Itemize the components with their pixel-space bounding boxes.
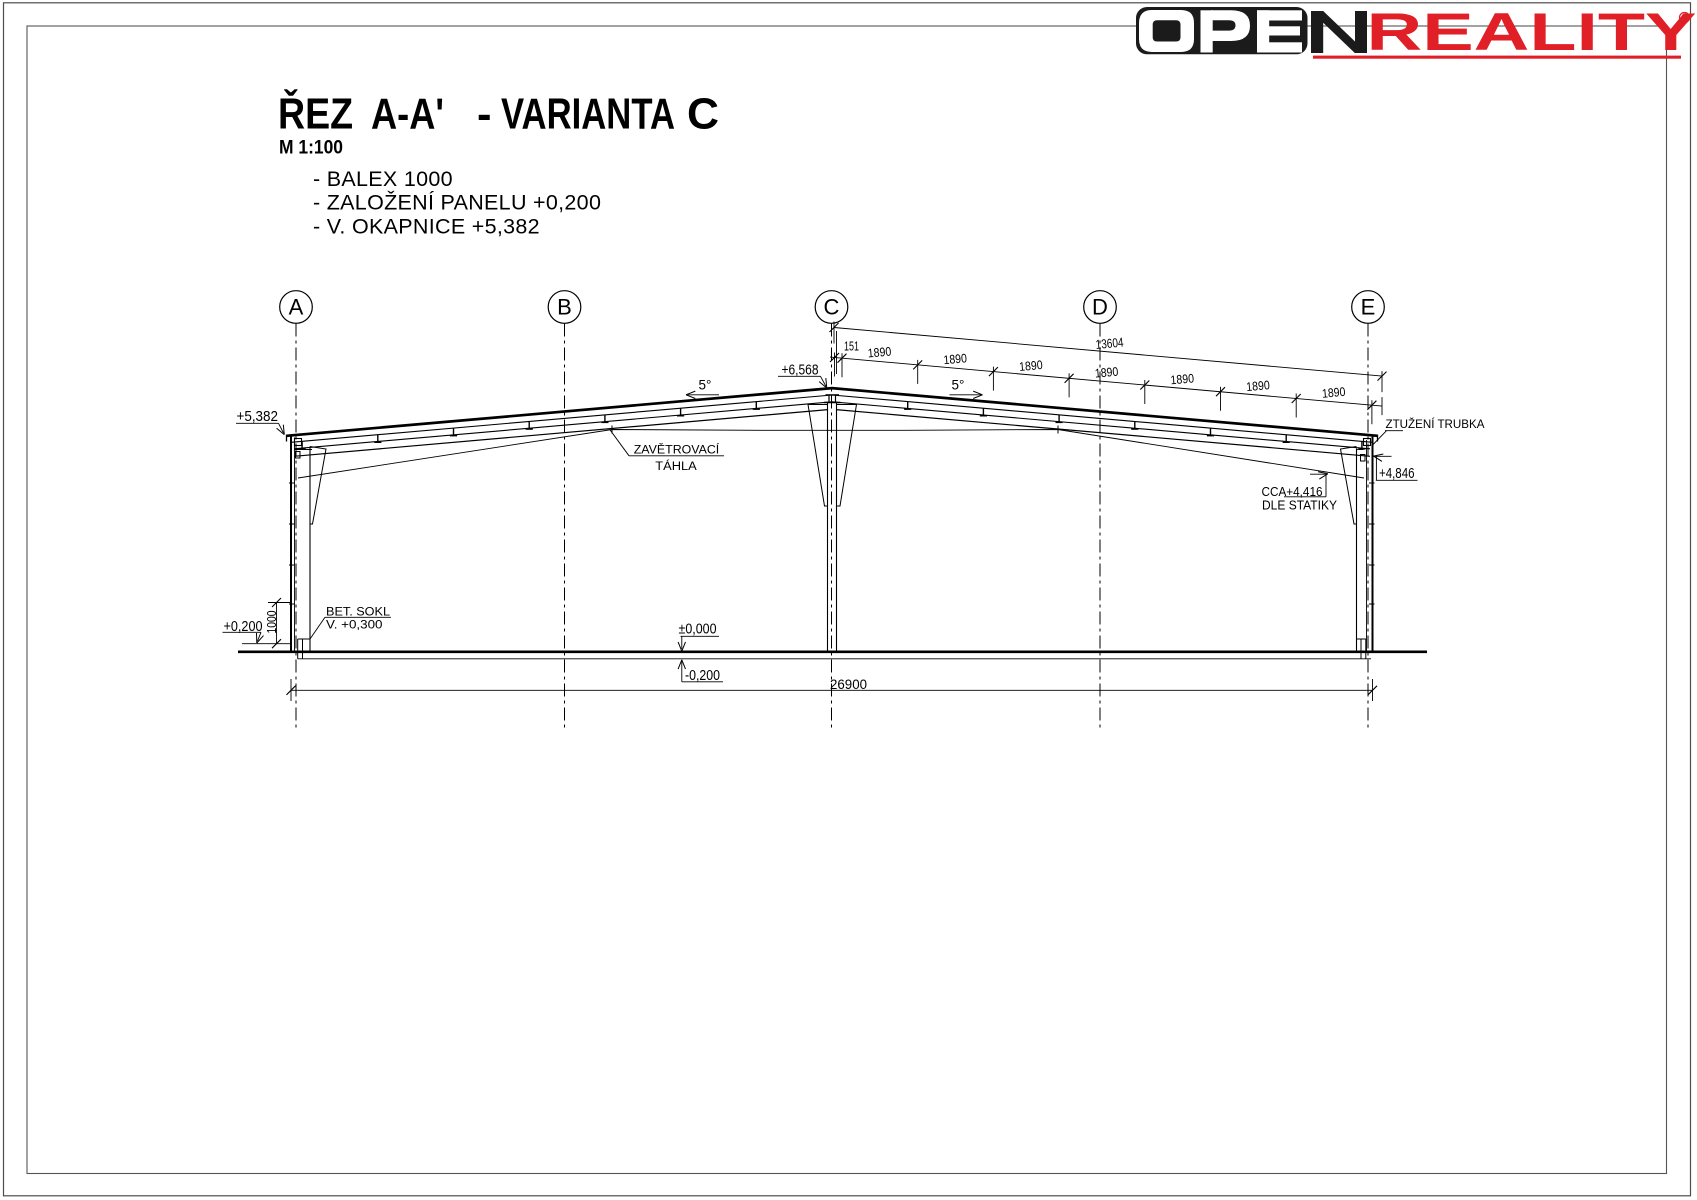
svg-text:5°: 5° [699, 378, 712, 393]
svg-text:1890: 1890 [1321, 385, 1346, 401]
svg-text:TÁHLA: TÁHLA [655, 458, 697, 473]
svg-text:5°: 5° [952, 378, 965, 393]
svg-text:1890: 1890 [1246, 378, 1271, 394]
svg-text:R: R [1682, 14, 1688, 23]
svg-text:151: 151 [844, 340, 859, 354]
svg-text:B: B [557, 295, 572, 320]
svg-text:ZAVĚTROVACÍ: ZAVĚTROVACÍ [634, 442, 720, 457]
svg-text:A: A [289, 295, 304, 320]
svg-text:VARIANTA: VARIANTA [501, 91, 675, 139]
svg-text:C: C [824, 295, 840, 320]
svg-text:1890: 1890 [1094, 365, 1119, 381]
svg-text:BET. SOKL: BET. SOKL [326, 605, 390, 619]
svg-text:D: D [1092, 295, 1108, 320]
svg-text:C: C [687, 91, 719, 139]
svg-text:+5,382: +5,382 [237, 409, 279, 425]
svg-text:26900: 26900 [830, 677, 867, 692]
svg-text:- ZALOŽENÍ PANELU +0,200: - ZALOŽENÍ PANELU +0,200 [313, 190, 601, 215]
svg-text:V. +0,300: V. +0,300 [326, 618, 383, 632]
svg-text:A-A': A-A' [371, 91, 444, 139]
svg-text:1890: 1890 [1019, 358, 1044, 374]
svg-text:REALITY: REALITY [1367, 3, 1697, 62]
svg-text:- BALEX 1000: - BALEX 1000 [313, 167, 453, 191]
svg-text:13604: 13604 [1095, 335, 1124, 352]
svg-text:DLE STATIKY: DLE STATIKY [1262, 498, 1337, 513]
svg-text:±0,000: ±0,000 [679, 622, 717, 638]
svg-text:-: - [477, 91, 492, 139]
svg-text:1890: 1890 [1170, 371, 1195, 387]
svg-text:ŘEZ: ŘEZ [278, 89, 353, 139]
svg-text:- V. OKAPNICE +5,382: - V. OKAPNICE +5,382 [313, 215, 540, 239]
svg-text:1890: 1890 [867, 345, 892, 361]
svg-text:1890: 1890 [943, 351, 968, 367]
svg-text:M 1:100: M 1:100 [279, 138, 343, 159]
svg-text:E: E [1361, 295, 1376, 320]
svg-text:ZTUŽENÍ TRUBKA: ZTUŽENÍ TRUBKA [1386, 416, 1486, 431]
svg-text:1000: 1000 [265, 610, 279, 633]
svg-text:+4,846: +4,846 [1379, 466, 1415, 482]
